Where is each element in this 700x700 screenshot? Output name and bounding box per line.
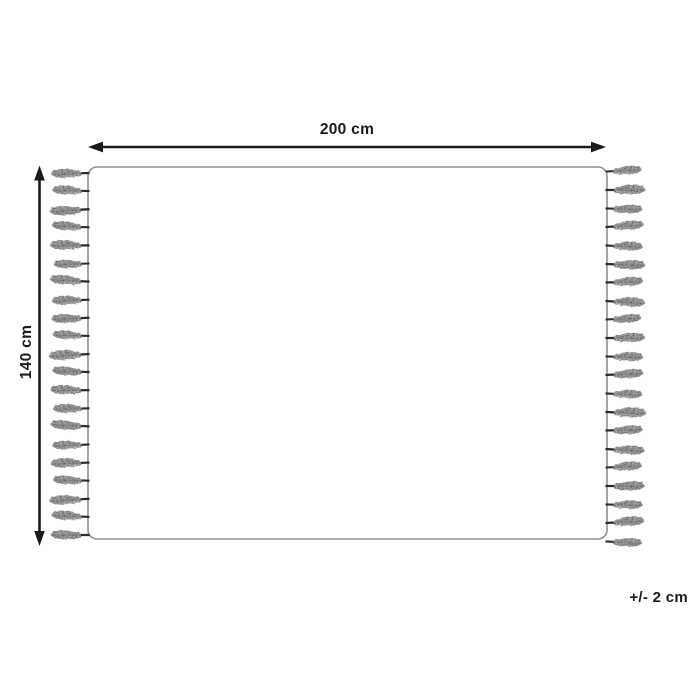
- tassel-body: [52, 366, 81, 376]
- rug-outline: [88, 167, 607, 539]
- tassel-stem: [605, 429, 615, 431]
- tassel-stem: [80, 443, 90, 446]
- tassel-body: [615, 260, 646, 270]
- tassel: [605, 165, 642, 175]
- tassel: [53, 259, 89, 268]
- tassel-stem: [605, 503, 615, 505]
- tassel: [605, 351, 643, 361]
- tassel: [51, 168, 90, 178]
- tassel: [52, 366, 90, 376]
- tassel-stem: [80, 335, 90, 337]
- tassel: [48, 348, 90, 360]
- tassel: [605, 516, 645, 527]
- tassel-body: [53, 476, 81, 485]
- tassel-stem: [605, 318, 614, 320]
- tassel: [605, 537, 642, 547]
- tassel-stem: [605, 540, 615, 543]
- tassel: [605, 314, 641, 324]
- tassel: [605, 296, 645, 308]
- tassel: [52, 330, 89, 339]
- tassel: [50, 240, 90, 250]
- tassel-stem: [79, 244, 89, 246]
- tassel-stem: [605, 337, 615, 339]
- tassel-body: [614, 425, 643, 434]
- tassel-stem: [79, 389, 89, 391]
- tassel-body: [51, 168, 81, 178]
- tassel-body: [614, 165, 642, 174]
- tassel: [50, 530, 89, 539]
- tassel: [605, 461, 642, 471]
- tassel-stem: [605, 207, 615, 209]
- tassel-stem: [605, 244, 615, 247]
- tassel-body: [50, 420, 81, 430]
- tassel-stem: [79, 534, 89, 536]
- tassel-stem: [80, 262, 89, 264]
- tassel: [605, 259, 646, 269]
- arrowhead-left-icon: [88, 142, 103, 153]
- tassel: [49, 494, 90, 506]
- tassel: [52, 185, 90, 195]
- tassel-stem: [79, 317, 89, 320]
- tassel: [605, 425, 643, 434]
- tassel-stem: [605, 355, 615, 357]
- tassel: [605, 220, 644, 231]
- width-dimension-arrow: [88, 142, 606, 153]
- tassel: [50, 385, 89, 394]
- tassel: [49, 205, 90, 216]
- tassel: [53, 403, 90, 413]
- tassel: [605, 333, 645, 342]
- tassel: [51, 510, 90, 521]
- tassel-body: [49, 205, 80, 216]
- tassel-stem: [605, 392, 615, 395]
- fringe-right: [605, 165, 647, 547]
- tassel: [605, 406, 646, 417]
- tassel: [50, 457, 89, 468]
- tassel: [605, 185, 645, 195]
- tassel-body: [614, 296, 645, 307]
- dimension-diagram: 200 cm 140 cm +/- 2 cm: [0, 0, 700, 700]
- tassel-stem: [80, 407, 89, 409]
- tassel-body: [51, 221, 80, 231]
- tassel-body: [614, 369, 644, 379]
- tassel: [52, 440, 90, 450]
- tassel: [605, 204, 642, 213]
- tassel-body: [48, 349, 80, 361]
- tassel: [53, 476, 90, 485]
- dimension-diagram-canvas: [0, 0, 700, 700]
- tassel-stem: [80, 371, 90, 374]
- tassel: [605, 444, 645, 455]
- width-dimension-label: 200 cm: [320, 121, 374, 139]
- arrowhead-up-icon: [34, 166, 45, 181]
- tassel-body: [49, 274, 80, 285]
- tassel-stem: [605, 170, 614, 172]
- tassel: [605, 369, 644, 380]
- tassel-stem: [79, 461, 89, 464]
- tassel-stem: [605, 189, 615, 191]
- tassel-stem: [80, 190, 90, 192]
- tassel: [605, 240, 643, 251]
- tassel: [605, 500, 643, 510]
- tassel-body: [614, 204, 643, 213]
- arrowhead-right-icon: [591, 142, 606, 153]
- tassel-body: [53, 260, 81, 269]
- tassel-body: [49, 494, 81, 505]
- tassel: [605, 277, 643, 287]
- tassel: [605, 389, 642, 399]
- tassel-body: [614, 220, 644, 230]
- tassel: [51, 221, 89, 231]
- tassel-body: [614, 445, 645, 456]
- tolerance-label: +/- 2 cm: [629, 589, 688, 606]
- tassel-stem: [605, 466, 614, 468]
- tassel-body: [614, 389, 643, 399]
- tassel: [605, 481, 644, 490]
- fringe-left: [48, 168, 90, 539]
- tassel-body: [51, 314, 81, 324]
- tassel-body: [614, 538, 642, 547]
- tassel-stem: [605, 281, 615, 283]
- arrowhead-down-icon: [34, 531, 45, 546]
- tassel-body: [52, 440, 81, 450]
- tassel-body: [614, 314, 642, 323]
- tassel-stem: [605, 485, 615, 487]
- tassel: [50, 420, 90, 431]
- height-dimension-label: 140 cm: [18, 325, 36, 379]
- tassel-stem: [605, 263, 616, 266]
- tassel: [49, 274, 89, 285]
- tassel-stem: [605, 411, 616, 414]
- tassel: [51, 313, 90, 323]
- tassel-stem: [80, 226, 90, 229]
- tassel-stem: [80, 515, 90, 518]
- tassel: [51, 295, 89, 306]
- tassel-stem: [80, 479, 90, 481]
- tassel-stem: [79, 172, 89, 175]
- tassel-stem: [80, 299, 90, 302]
